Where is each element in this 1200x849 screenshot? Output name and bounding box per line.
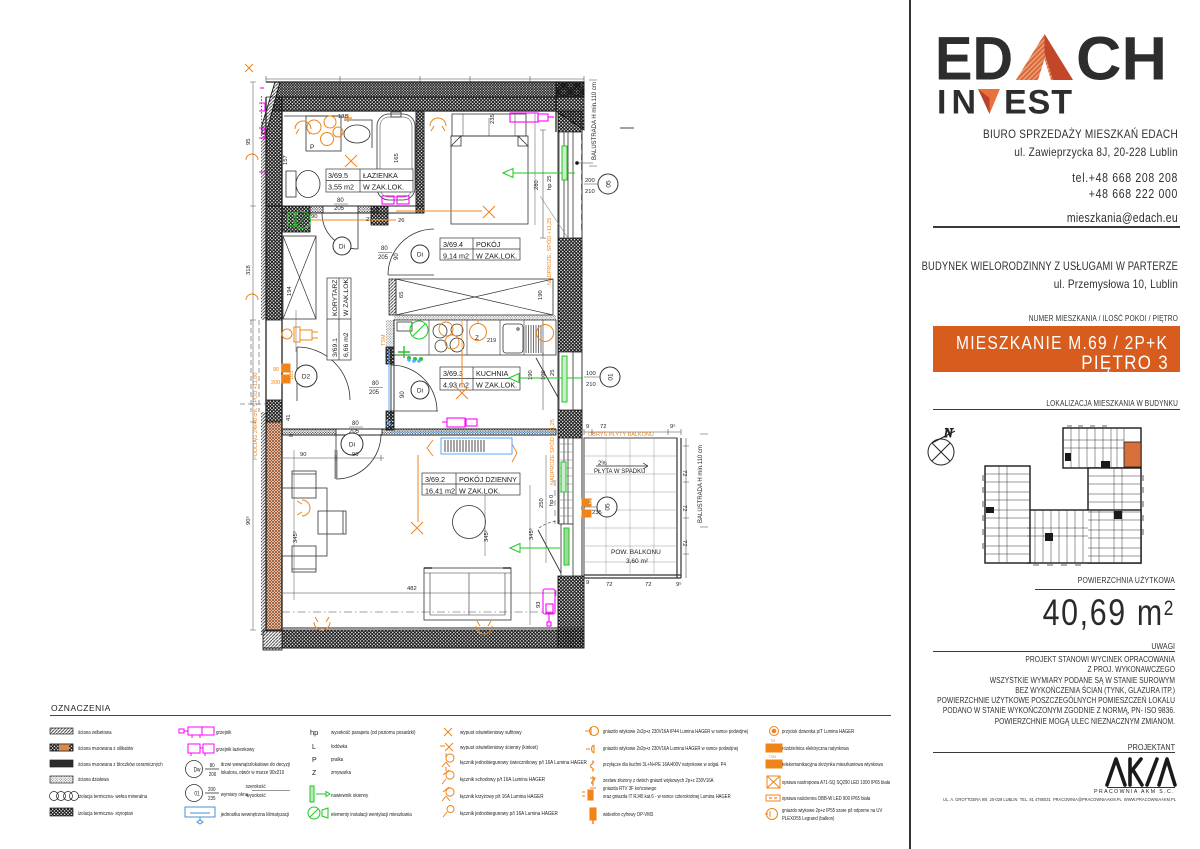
svg-text:ściana murowana z bloczków cer: ściana murowana z bloczków ceramicznych: [78, 762, 163, 769]
svg-text:100: 100: [586, 371, 596, 377]
svg-text:NADPROŻE SPÓD +11,25: NADPROŻE SPÓD +11,25: [549, 419, 556, 485]
svg-text:W ZAK.LOK.: W ZAK.LOK.: [363, 183, 404, 192]
svg-text:105: 105: [289, 371, 295, 380]
svg-text:POKÓJ: POKÓJ: [476, 240, 501, 249]
svg-text:BALUSTRADA H min.110 cm: BALUSTRADA H min.110 cm: [698, 445, 704, 523]
svg-text:80: 80: [210, 763, 215, 770]
svg-text:235: 235: [208, 796, 216, 803]
svg-text:05: 05: [606, 180, 613, 188]
svg-text:NADPROŻE, SPÓD +11,25: NADPROŻE, SPÓD +11,25: [546, 218, 553, 285]
svg-text:wypust oświetleniowy ścienny (: wypust oświetleniowy ścienny (kinkiet): [460, 745, 538, 752]
svg-text:9: 9: [586, 424, 589, 430]
svg-text:nawiewnik okienny: nawiewnik okienny: [331, 793, 369, 800]
svg-text:200: 200: [209, 772, 217, 779]
svg-text:gniazdo wtykowe 2p+z IP55 szar: gniazdo wtykowe 2p+z IP55 szare p/t odpo…: [782, 808, 883, 815]
svg-text:P: P: [312, 757, 317, 764]
svg-text:205: 205: [369, 390, 380, 396]
svg-text:Z: Z: [475, 335, 479, 342]
svg-text:oprawa nastropowa A71-SQ SQ290: oprawa nastropowa A71-SQ SQ290 LED 1000 …: [782, 780, 890, 787]
svg-text:wideofon cyfrowy OP-VM3: wideofon cyfrowy OP-VM3: [603, 812, 654, 819]
svg-text:250: 250: [589, 500, 598, 506]
svg-text:N: N: [943, 425, 954, 440]
svg-text:250: 250: [539, 498, 545, 508]
svg-text:190: 190: [528, 370, 534, 380]
svg-text:235: 235: [490, 114, 496, 124]
svg-text:IN: IN: [937, 84, 976, 121]
svg-text:205: 205: [334, 206, 345, 212]
svg-text:90: 90: [394, 253, 400, 260]
svg-text:165: 165: [394, 153, 400, 163]
svg-text:izolacja termiczna- styropian: izolacja termiczna- styropian: [78, 811, 133, 818]
svg-text:grzejnik łazienkowy: grzejnik łazienkowy: [216, 747, 255, 754]
svg-text:telekomunikacyjna skrzynka mie: telekomunikacyjna skrzynka mieszkaniowa …: [782, 762, 883, 769]
svg-text:KORYTARZ: KORYTARZ: [332, 280, 339, 316]
svg-text:26: 26: [398, 218, 404, 224]
svg-text:210: 210: [585, 189, 595, 195]
svg-text:72: 72: [600, 424, 606, 430]
svg-text:łącznik jednobiegunowy świeczn: łącznik jednobiegunowy świecznikowy p/t …: [460, 760, 587, 767]
svg-text:4,93 m2: 4,93 m2: [443, 381, 469, 390]
svg-text:80: 80: [352, 421, 359, 427]
svg-text:01: 01: [608, 373, 615, 381]
svg-text:280: 280: [534, 180, 540, 190]
svg-text:72: 72: [645, 582, 651, 588]
svg-text:hp: hp: [310, 728, 318, 737]
svg-text:80: 80: [337, 198, 344, 204]
svg-text:oraz gniazda IT RJ45 kat.6 - w: oraz gniazda IT RJ45 kat.6 - w ramce czt…: [603, 794, 731, 801]
svg-text:194: 194: [287, 286, 293, 296]
svg-text:przycisk dzwonka p/T Lumina HA: przycisk dzwonka p/T Lumina HAGER: [782, 729, 855, 736]
svg-text:gniazdo wtykowe 2x2p+z 230V16A: gniazdo wtykowe 2x2p+z 230V16A IP44 Lumi…: [603, 729, 748, 736]
svg-text:9⁵: 9⁵: [670, 423, 676, 430]
svg-text:90: 90: [352, 452, 358, 458]
svg-text:drzwi wewnątrzlokalowe do decy: drzwi wewnątrzlokalowe do decyzji: [221, 762, 290, 769]
svg-text:3/69.4: 3/69.4: [443, 240, 463, 249]
svg-text:zmywarka: zmywarka: [331, 770, 351, 777]
svg-text:16,41 m2: 16,41 m2: [425, 487, 455, 496]
svg-text:ściana murowana z silikatów: ściana murowana z silikatów: [78, 746, 134, 753]
svg-text:9: 9: [586, 580, 589, 586]
svg-text:210: 210: [586, 382, 596, 388]
svg-text:235: 235: [592, 510, 602, 516]
svg-text:200: 200: [271, 380, 280, 386]
svg-text:2%: 2%: [598, 461, 607, 467]
svg-text:PLEXO55 Legrand (balkon): PLEXO55 Legrand (balkon): [782, 816, 835, 823]
svg-text:ŁAZIENKA: ŁAZIENKA: [363, 171, 398, 180]
svg-text:3/69.3: 3/69.3: [443, 369, 463, 378]
svg-text:TSM: TSM: [381, 334, 387, 346]
svg-text:BALUSTRADA H min.110 cm: BALUSTRADA H min.110 cm: [592, 82, 598, 160]
svg-text:Di: Di: [339, 244, 345, 251]
svg-text:Di: Di: [349, 442, 355, 449]
svg-text:KUCHNIA: KUCHNIA: [476, 369, 509, 378]
svg-text:3/69.1: 3/69.1: [332, 338, 339, 357]
svg-text:zestaw złożony z dwóch gniazd: zestaw złożony z dwóch gniazd wtykowych …: [603, 778, 714, 785]
svg-text:345⁵: 345⁵: [483, 529, 490, 542]
svg-text:3/69.2: 3/69.2: [425, 475, 445, 484]
svg-text:41: 41: [286, 415, 292, 421]
svg-text:POKÓJ DZIENNY: POKÓJ DZIENNY: [459, 475, 517, 484]
svg-text:90: 90: [300, 452, 306, 458]
svg-text:25: 25: [550, 370, 556, 376]
svg-text:138: 138: [338, 114, 348, 120]
svg-text:TM: TM: [771, 739, 776, 743]
svg-text:ściana działowa: ściana działowa: [78, 777, 109, 784]
svg-text:482: 482: [407, 586, 417, 592]
svg-text:PŁYTA W SPADKU: PŁYTA W SPADKU: [594, 469, 645, 475]
svg-text:345⁵: 345⁵: [292, 530, 299, 543]
svg-text:05: 05: [605, 503, 612, 511]
svg-text:9⁵: 9⁵: [676, 581, 682, 588]
svg-text:3,60 m²: 3,60 m²: [626, 558, 649, 565]
svg-text:3,55 m2: 3,55 m2: [328, 183, 354, 192]
svg-text:grzejnik: grzejnik: [216, 730, 232, 737]
svg-text:wysokość parapetu (od poziomu: wysokość parapetu (od poziomu posadzki): [331, 730, 416, 737]
svg-text:pralka: pralka: [331, 757, 343, 764]
svg-text:szerokość: szerokość: [246, 784, 267, 791]
svg-text:W ZAK.LOK.: W ZAK.LOK.: [343, 277, 350, 316]
svg-text:72: 72: [681, 505, 687, 511]
svg-text:3/69.5: 3/69.5: [328, 171, 348, 180]
svg-text:80: 80: [381, 246, 388, 252]
svg-text:elementy instalacji wentylacji: elementy instalacji wentylacji mieszkani…: [331, 812, 412, 819]
svg-text:190: 190: [538, 290, 544, 300]
svg-text:przyłącze dla kuchni 3L+N+PE 1: przyłącze dla kuchni 3L+N+PE 16A/400V na…: [603, 762, 726, 769]
svg-text:157: 157: [283, 155, 289, 165]
svg-text:EST: EST: [1004, 84, 1072, 121]
svg-text:318: 318: [246, 265, 252, 275]
svg-text:72: 72: [681, 470, 687, 476]
svg-text:205: 205: [349, 429, 360, 435]
svg-text:90⁵: 90⁵: [245, 516, 252, 525]
svg-text:72: 72: [606, 582, 612, 588]
svg-text:345⁵: 345⁵: [528, 527, 535, 540]
svg-text:Di: Di: [417, 388, 423, 395]
svg-text:9,14 m2: 9,14 m2: [443, 252, 469, 261]
svg-text:gniazdo wtykowe 2x2p+z 230V16A: gniazdo wtykowe 2x2p+z 230V16A Lumina HA…: [603, 746, 738, 753]
svg-text:95: 95: [246, 139, 252, 145]
svg-text:200: 200: [585, 178, 595, 184]
svg-text:łącznik jednobiegunowy p/t 16A: łącznik jednobiegunowy p/t 16A Lumina HA…: [460, 811, 558, 818]
svg-text:wymiary okna: wymiary okna: [221, 792, 249, 799]
svg-text:W ZAK.LOK.: W ZAK.LOK.: [459, 487, 500, 496]
svg-text:łącznik krzyżowy p/t 16A Lumi: łącznik krzyżowy p/t 16A Lumina HAGER: [460, 794, 544, 801]
svg-text:lodówka: lodówka: [331, 744, 348, 751]
svg-text:POW. BALKONU: POW. BALKONU: [611, 549, 661, 556]
svg-text:W ZAK.LOK.: W ZAK.LOK.: [476, 252, 517, 261]
svg-text:90: 90: [400, 391, 406, 398]
svg-text:CH: CH: [1076, 28, 1167, 93]
svg-text:jednostka wewnętrzna klimatyza: jednostka wewnętrzna klimatyzacji: [220, 812, 289, 819]
svg-text:72: 72: [681, 540, 687, 546]
svg-text:wysokość: wysokość: [246, 793, 266, 800]
svg-text:65: 65: [399, 292, 405, 298]
svg-text:hp 0: hp 0: [549, 495, 555, 506]
svg-text:wypust oświetleniowy sufitowy: wypust oświetleniowy sufitowy: [460, 730, 522, 737]
svg-text:100: 100: [541, 370, 547, 380]
svg-text:D2: D2: [302, 374, 311, 381]
svg-text:P: P: [310, 144, 314, 151]
svg-text:90: 90: [273, 367, 279, 373]
svg-text:łącznik schodowy p/t 16A Lumi: łącznik schodowy p/t 16A Lumina HAGER: [460, 777, 545, 784]
svg-text:W ZAK.LOK.: W ZAK.LOK.: [476, 381, 517, 390]
svg-text:Di: Di: [417, 252, 423, 259]
svg-text:200: 200: [208, 787, 216, 794]
svg-text:OZNACZENIA: OZNACZENIA: [51, 703, 111, 713]
svg-text:Z: Z: [312, 770, 317, 777]
svg-text:90: 90: [311, 214, 317, 220]
svg-text:hp 25: hp 25: [547, 175, 553, 190]
svg-text:205: 205: [378, 255, 389, 261]
svg-text:Dw: Dw: [194, 767, 201, 774]
svg-text:27: 27: [366, 217, 372, 223]
svg-text:01: 01: [194, 791, 199, 798]
svg-text:izolacja termiczna- wełna mine: izolacja termiczna- wełna mineralna: [78, 794, 147, 801]
svg-text:219: 219: [487, 338, 496, 344]
svg-text:8: 8: [289, 434, 295, 437]
svg-text:TSM: TSM: [769, 755, 776, 759]
svg-text:ściana żelbetowa: ściana żelbetowa: [78, 730, 112, 737]
svg-text:6,66 m2: 6,66 m2: [343, 332, 350, 357]
svg-text:93: 93: [536, 602, 542, 608]
svg-text:gniazda RTV 3F końcowego: gniazda RTV 3F końcowego: [603, 786, 657, 793]
svg-text:OBRYS PŁYTY BALKONU: OBRYS PŁYTY BALKONU: [588, 432, 654, 438]
svg-text:L: L: [312, 744, 316, 751]
svg-text:lokatora, otwór w murze 90x210: lokatora, otwór w murze 90x210: [221, 770, 285, 777]
svg-text:80: 80: [372, 381, 379, 387]
